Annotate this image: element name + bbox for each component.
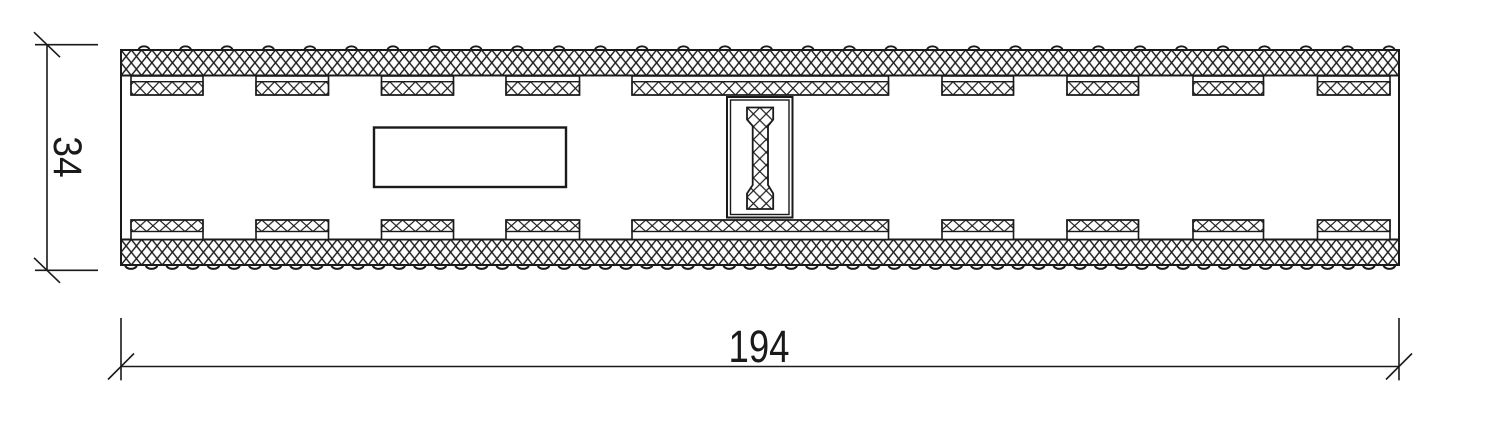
- svg-text:194: 194: [729, 321, 790, 372]
- svg-text:34: 34: [45, 136, 89, 178]
